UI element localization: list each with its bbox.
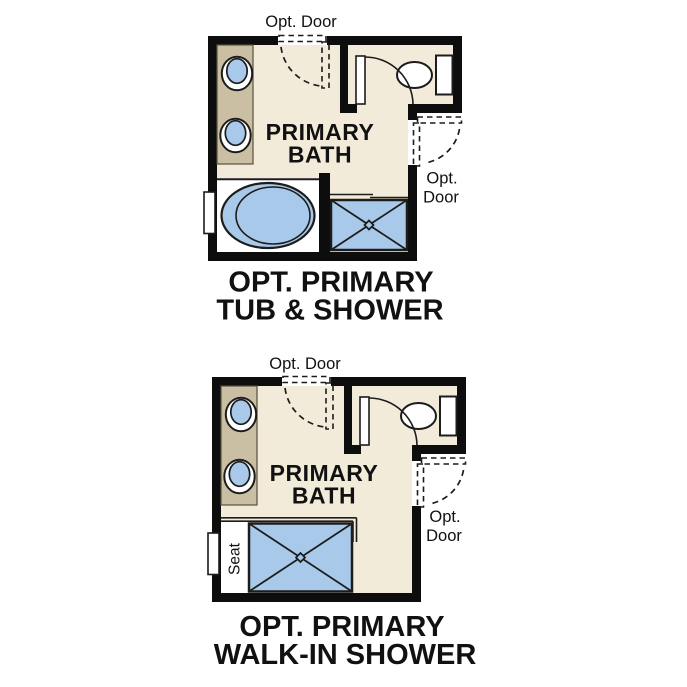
opt-door-side-label-line1: Opt.: [429, 508, 460, 526]
room-label-line2: BATH: [288, 142, 352, 168]
tub-icon: [217, 178, 319, 252]
floor-plan-page: Opt. Door PRIMARY BATH Opt. Door OPT. PR…: [0, 0, 687, 687]
plan-caption-line2: WALK-IN SHOWER: [214, 639, 477, 671]
shower-icon: [330, 195, 408, 251]
opt-door-top-label: Opt. Door: [269, 355, 341, 373]
seat-label: Seat: [227, 542, 244, 575]
plan-walk-in-shower: Seat Opt. Door PRIMARY BATH Opt. Door OP…: [208, 355, 476, 671]
room-label-line2: BATH: [292, 483, 356, 509]
opt-door-side-label-line2: Door: [426, 527, 462, 545]
plan-tub-and-shower: Opt. Door PRIMARY BATH Opt. Door OPT. PR…: [204, 13, 462, 327]
plan-caption-line2: TUB & SHOWER: [216, 295, 443, 327]
walk-in-shower-icon: Seat: [221, 518, 357, 593]
floor-plan-canvas: Opt. Door PRIMARY BATH Opt. Door OPT. PR…: [0, 0, 687, 687]
opt-door-side-label-line1: Opt.: [426, 170, 457, 188]
tub-shower-divider-wall: [319, 173, 330, 252]
opt-door-side-label-line2: Door: [423, 189, 459, 207]
opt-door-top-label: Opt. Door: [265, 13, 337, 31]
